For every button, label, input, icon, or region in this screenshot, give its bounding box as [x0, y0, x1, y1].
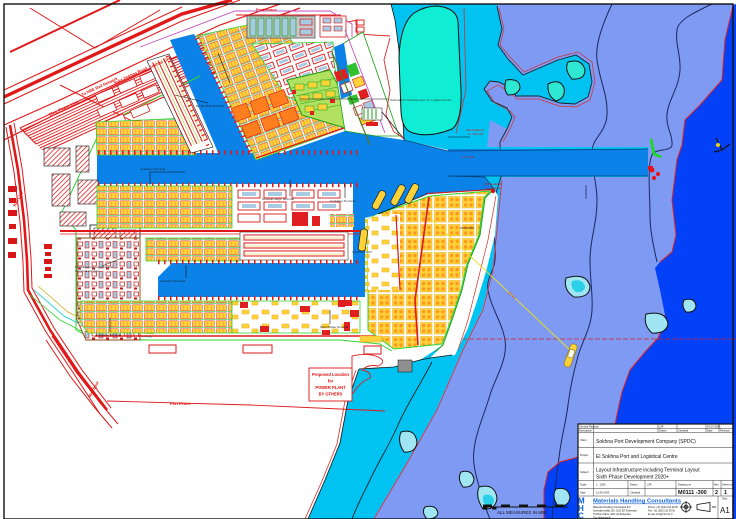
- svg-text:Project: Project: [580, 453, 588, 457]
- svg-text:Sheet no: Sheet no: [722, 483, 733, 487]
- svg-text:Sokhna Port Development Co. Lo: Sokhna Port Development Co. Logistic Cen…: [390, 98, 452, 102]
- svg-text:Revision: Revision: [720, 429, 731, 433]
- svg-text:Port Fence: Port Fence: [170, 401, 191, 406]
- svg-text:Date: Date: [580, 491, 586, 495]
- svg-text:-17.0 CD: -17.0 CD: [462, 155, 475, 159]
- svg-text:Industrial Activities: Industrial Activities: [75, 269, 100, 273]
- svg-text:1 : 1250: 1 : 1250: [596, 483, 606, 487]
- svg-text:Container Terminal: Container Terminal: [140, 167, 165, 171]
- svg-text:Sixth Phase Development 2020+: Sixth Phase Development 2020+: [596, 475, 669, 481]
- svg-text:Description: Description: [579, 429, 593, 433]
- svg-text:E-mail: info@mhc-bv.nl: E-mail: info@mhc-bv.nl: [648, 513, 673, 516]
- svg-text:General Cargo Terminal: General Cargo Terminal: [262, 197, 294, 201]
- svg-text:Checked: Checked: [678, 429, 689, 433]
- svg-text:General Revision: General Revision: [579, 425, 599, 429]
- svg-text:C: C: [578, 512, 584, 519]
- svg-text:M0111 -300: M0111 -300: [678, 490, 707, 496]
- svg-text:Drawing no: Drawing no: [678, 483, 692, 487]
- svg-text:for: for: [328, 379, 334, 384]
- svg-text:Proposed Location: Proposed Location: [312, 372, 350, 377]
- svg-text:POWER PLANT: POWER PLANT: [315, 385, 346, 390]
- svg-text:1: 1: [724, 490, 727, 496]
- svg-text:Layout Infrastructure includin: Layout Infrastructure including Terminal…: [596, 468, 700, 474]
- svg-text:12-09-2003: 12-09-2003: [596, 491, 610, 495]
- svg-text:02-10-2003: 02-10-2003: [707, 425, 721, 429]
- svg-text:Materials Handling Consultan: Materials Handling Consultants: [593, 499, 682, 505]
- svg-text:Client: Client: [580, 438, 587, 442]
- svg-text:Container Terminal: Container Terminal: [330, 199, 355, 203]
- svg-text:Rev: Rev: [714, 483, 719, 487]
- svg-text:Checked: Checked: [630, 491, 641, 495]
- svg-text:Size: Size: [722, 497, 728, 501]
- svg-text:Container Terminal: Container Terminal: [160, 279, 185, 283]
- svg-text:JJR: JJR: [659, 425, 664, 429]
- svg-text:Ro-Ro Bulk Terminal: Ro-Ro Bulk Terminal: [196, 104, 224, 108]
- svg-text:Sokhna Port Development Compan: Sokhna Port Development Company (SPDC): [596, 439, 696, 445]
- svg-text:ALL MEASURES IN MM: ALL MEASURES IN MM: [497, 510, 546, 515]
- svg-text:BY OTHERS: BY OTHERS: [319, 392, 343, 397]
- svg-text:Date: Date: [707, 429, 713, 433]
- svg-text:JJR: JJR: [647, 483, 652, 487]
- svg-text:Drawn: Drawn: [630, 483, 638, 487]
- svg-text:to -12.0 CD: to -12.0 CD: [468, 132, 484, 136]
- svg-text:El Sokhna Port and Logistical: El Sokhna Port and Logistical Centre: [596, 454, 678, 460]
- svg-text:Scale: Scale: [580, 483, 587, 487]
- svg-text:Sixth Phase Terminal: Sixth Phase Terminal: [320, 325, 348, 329]
- svg-text:Port Fence: Port Fence: [256, 7, 277, 12]
- svg-text:Subject: Subject: [580, 470, 589, 474]
- svg-text:A1: A1: [720, 506, 730, 515]
- svg-text:Drawn: Drawn: [659, 429, 667, 433]
- svg-text:2: 2: [715, 490, 718, 496]
- svg-text:Container Terminal: Container Terminal: [96, 333, 121, 337]
